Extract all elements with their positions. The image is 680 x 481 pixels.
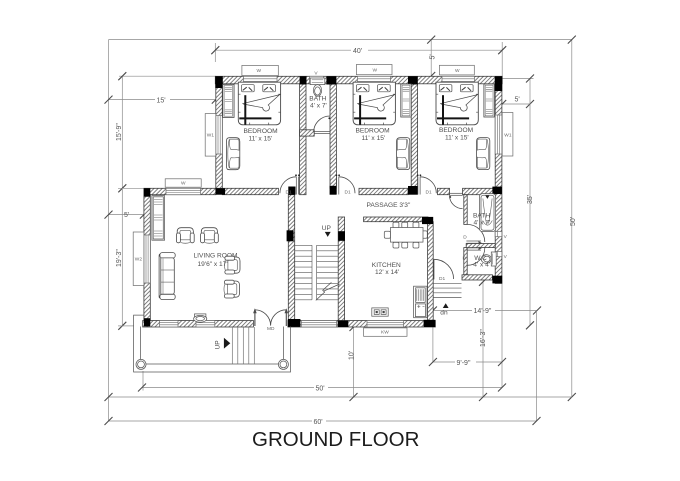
svg-text:4' x 7': 4' x 7': [310, 103, 327, 110]
svg-text:BEDROOM: BEDROOM: [439, 127, 473, 134]
svg-text:W: W: [373, 67, 378, 73]
svg-text:PASSAGE 3'3": PASSAGE 3'3": [367, 202, 411, 209]
svg-text:BEDROOM: BEDROOM: [244, 128, 278, 135]
svg-text:4' x 7': 4' x 7': [474, 220, 491, 227]
svg-text:12' x 14': 12' x 14': [375, 269, 399, 276]
svg-text:D1: D1: [345, 189, 351, 195]
svg-text:5': 5': [515, 97, 520, 104]
svg-text:W1: W1: [207, 133, 215, 139]
svg-text:16'-3": 16'-3": [480, 329, 487, 347]
svg-text:W1: W1: [504, 132, 512, 138]
svg-text:BATH: BATH: [473, 213, 490, 220]
svg-text:D: D: [463, 256, 467, 262]
svg-text:UP: UP: [322, 225, 332, 232]
svg-text:D1: D1: [286, 189, 292, 195]
svg-text:19'-3": 19'-3": [116, 249, 123, 267]
svg-text:15': 15': [157, 98, 166, 105]
svg-text:5': 5': [430, 54, 437, 59]
svg-text:50': 50': [570, 217, 577, 226]
svg-text:15'-9": 15'-9": [116, 123, 123, 141]
svg-text:D1: D1: [439, 276, 445, 282]
svg-text:KW: KW: [381, 330, 389, 336]
svg-text:9'-9": 9'-9": [457, 360, 471, 367]
svg-text:10': 10': [349, 351, 356, 360]
svg-text:11' x 15': 11' x 15': [362, 135, 386, 142]
svg-text:40': 40': [353, 48, 362, 55]
svg-text:W2: W2: [135, 257, 143, 263]
svg-text:35': 35': [527, 195, 534, 204]
svg-text:W: W: [181, 181, 186, 187]
svg-text:60': 60': [314, 419, 323, 426]
svg-text:UP: UP: [215, 340, 222, 350]
svg-text:MD: MD: [267, 326, 275, 332]
svg-text:D: D: [463, 235, 467, 241]
svg-text:5': 5': [124, 212, 129, 219]
svg-text:GROUND FLOOR: GROUND FLOOR: [252, 428, 419, 451]
svg-text:W: W: [455, 68, 460, 74]
svg-text:50': 50': [316, 385, 325, 392]
svg-text:11' x 15': 11' x 15': [445, 135, 469, 142]
svg-text:D1: D1: [426, 189, 432, 195]
svg-text:W: W: [257, 68, 262, 74]
svg-text:KITCHEN: KITCHEN: [372, 262, 401, 269]
svg-text:dn: dn: [440, 309, 448, 316]
svg-text:BEDROOM: BEDROOM: [356, 127, 390, 134]
svg-text:11' x 15': 11' x 15': [249, 136, 273, 143]
svg-text:4' x 4': 4' x 4': [473, 262, 490, 269]
